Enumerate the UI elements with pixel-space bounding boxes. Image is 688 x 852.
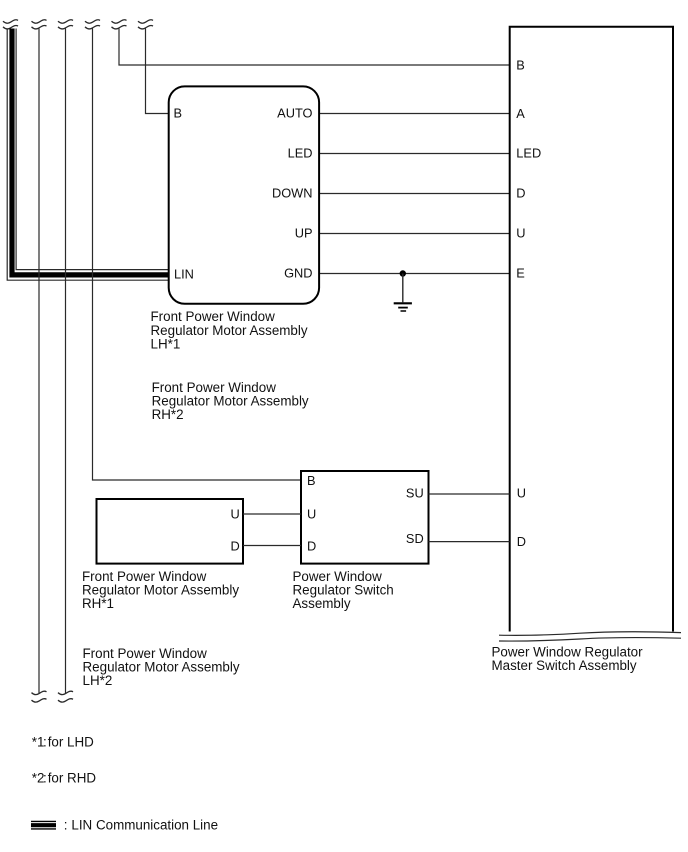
- svg-text:B: B: [516, 58, 525, 73]
- svg-text:U: U: [517, 486, 526, 501]
- svg-text:B: B: [174, 106, 183, 121]
- svg-text:SU: SU: [406, 486, 424, 501]
- svg-text:D: D: [517, 534, 526, 549]
- svg-text:D: D: [231, 539, 240, 554]
- svg-text:Master Switch Assembly: Master Switch Assembly: [492, 658, 637, 673]
- svg-text:U: U: [516, 226, 525, 241]
- svg-text:UP: UP: [295, 226, 313, 241]
- svg-text:LH*1: LH*1: [151, 336, 181, 351]
- svg-text:*1:for LHD: *1:for LHD: [32, 734, 94, 749]
- svg-text:LED: LED: [516, 146, 541, 161]
- svg-text::LIN Communication Line: :LIN Communication Line: [64, 817, 218, 832]
- svg-text:U: U: [231, 507, 240, 522]
- svg-text:*2:for RHD: *2:for RHD: [32, 771, 97, 786]
- svg-text:B: B: [307, 473, 316, 488]
- svg-text:LED: LED: [288, 146, 313, 161]
- svg-text:D: D: [307, 539, 316, 554]
- svg-text:RH*2: RH*2: [152, 407, 184, 422]
- svg-text:E: E: [516, 266, 525, 281]
- svg-text:AUTO: AUTO: [277, 106, 312, 121]
- svg-text:LH*2: LH*2: [83, 673, 113, 688]
- svg-text:SD: SD: [406, 531, 424, 546]
- svg-text:U: U: [307, 507, 316, 522]
- svg-text:GND: GND: [284, 266, 312, 281]
- svg-text:D: D: [516, 186, 525, 201]
- svg-text:Assembly: Assembly: [293, 596, 351, 611]
- svg-text:DOWN: DOWN: [272, 186, 313, 201]
- svg-text:A: A: [516, 106, 525, 121]
- svg-text:LIN: LIN: [174, 267, 194, 282]
- svg-text:RH*1: RH*1: [82, 596, 114, 611]
